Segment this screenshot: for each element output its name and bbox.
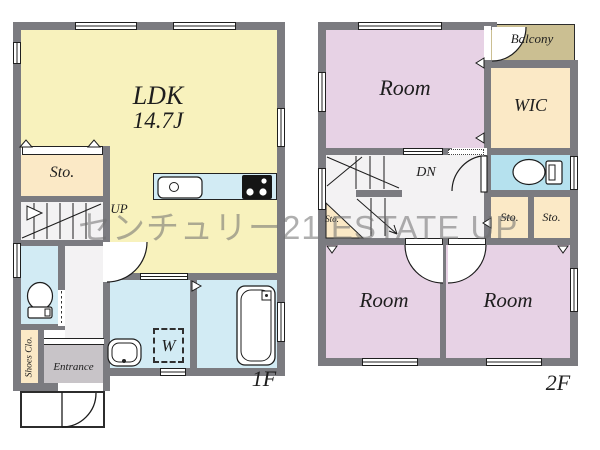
window xyxy=(570,156,578,190)
window xyxy=(13,243,21,278)
wall xyxy=(440,245,446,358)
watermark: センチュリー21 ESTATE UP xyxy=(78,201,518,249)
entrance-step xyxy=(44,338,104,345)
window xyxy=(570,268,578,312)
ldk-label: LDK xyxy=(113,83,203,109)
window xyxy=(358,22,442,30)
floor2-label: 2F xyxy=(534,370,582,396)
window xyxy=(362,358,418,366)
sliding-door xyxy=(140,273,188,280)
ldk-size-label: 14.7J xyxy=(113,109,203,133)
window xyxy=(13,42,21,64)
closet-shelf xyxy=(22,146,103,155)
bedroom-left-label: Room xyxy=(338,286,430,314)
window xyxy=(277,302,285,342)
wic-label: WIC xyxy=(491,93,570,117)
wall xyxy=(190,280,197,368)
door-opening xyxy=(484,26,491,60)
room-toilet-1f xyxy=(21,246,58,324)
entrance-label: Entrance xyxy=(44,359,103,375)
wall xyxy=(570,60,578,366)
floorplan-canvas: LDK 14.7J Sto. UP Shoes Clo. Entrance W … xyxy=(0,0,600,450)
door-opening xyxy=(58,290,65,326)
floor1-label: 1F xyxy=(240,366,288,392)
wall xyxy=(110,273,285,280)
window xyxy=(75,22,137,30)
storage-2f-right-label: Sto. xyxy=(533,209,570,225)
balcony-label: Balcony xyxy=(492,30,572,48)
wall xyxy=(356,190,402,197)
storage-1f-label: Sto. xyxy=(21,163,103,183)
window xyxy=(173,22,236,30)
window xyxy=(318,72,326,112)
wall xyxy=(103,282,110,391)
bedroom-top-label: Room xyxy=(350,74,460,102)
window xyxy=(160,368,186,376)
wall xyxy=(13,22,285,30)
window xyxy=(277,108,285,147)
sliding-door xyxy=(403,148,443,155)
kitchen-counter xyxy=(153,173,277,200)
room-bathroom xyxy=(197,280,277,368)
door-opening xyxy=(58,383,103,391)
wall xyxy=(484,60,578,68)
wall xyxy=(491,190,570,197)
window xyxy=(486,358,542,366)
entrance-porch xyxy=(20,391,105,428)
room-toilet-2f xyxy=(491,155,570,190)
hall-1f xyxy=(65,246,103,338)
washer-label: W xyxy=(153,328,184,363)
shoes-closet-label: Shoes Clo. xyxy=(17,331,41,383)
bedroom-right-label: Room xyxy=(456,286,560,314)
sliding-door xyxy=(448,149,484,155)
stairs-dn-label: DN xyxy=(404,163,448,183)
